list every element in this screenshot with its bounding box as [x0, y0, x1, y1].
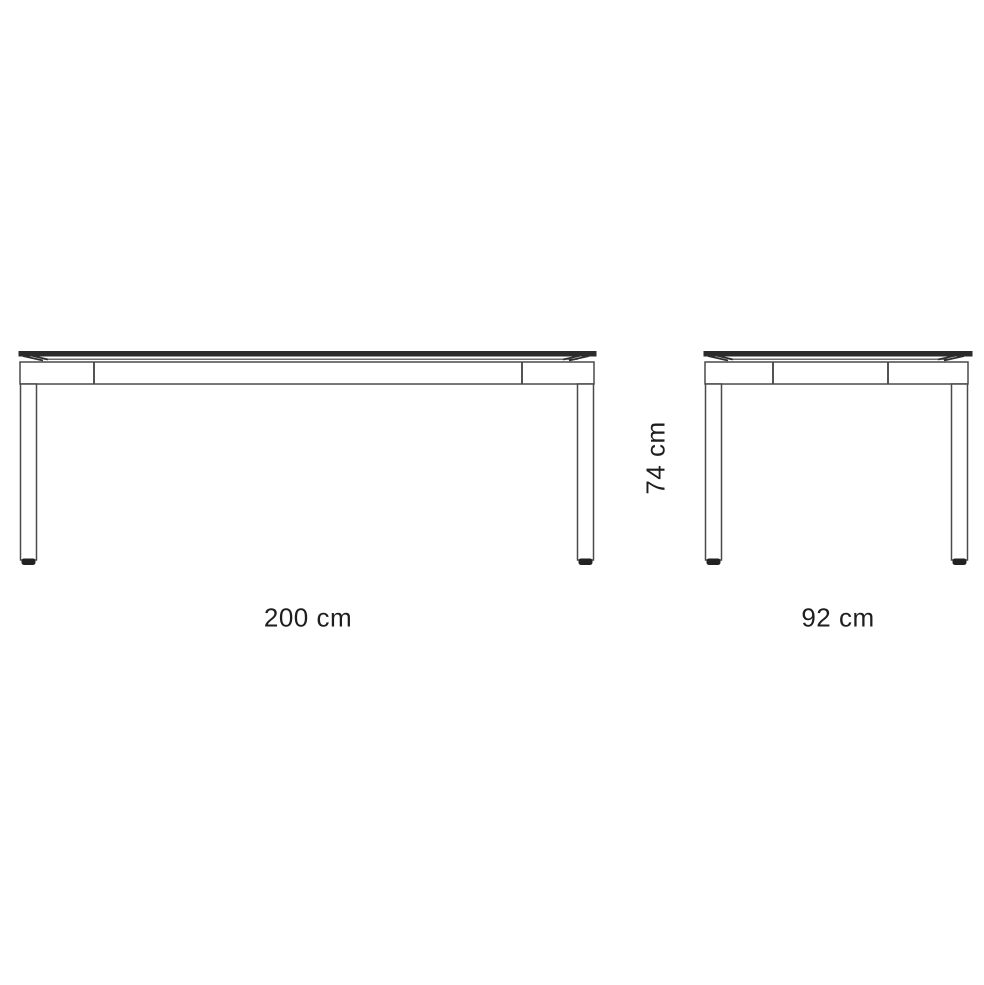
side-width-label: 92 cm: [801, 603, 874, 634]
side-apron: [705, 362, 968, 384]
table-line-drawing: [0, 0, 984, 985]
front-left-foot: [22, 559, 36, 566]
side-tabletop: [704, 352, 972, 357]
side-right-edge-marks: [938, 356, 964, 361]
front-right-edge-marks: [563, 356, 589, 361]
front-apron: [20, 362, 594, 384]
front-right-foot: [579, 559, 593, 566]
side-left-foot: [707, 559, 721, 566]
side-right-foot: [953, 559, 967, 566]
side-view-drawing: [704, 352, 972, 566]
drawing-canvas: 200 cm 92 cm 74 cm: [0, 0, 984, 985]
side-left-leg: [706, 384, 722, 560]
height-label: 74 cm: [641, 421, 672, 494]
front-view-drawing: [19, 352, 596, 566]
side-right-leg: [952, 384, 968, 560]
front-right-leg: [578, 384, 594, 560]
front-tabletop: [19, 352, 596, 357]
front-left-leg: [21, 384, 37, 560]
front-width-label: 200 cm: [264, 603, 352, 634]
